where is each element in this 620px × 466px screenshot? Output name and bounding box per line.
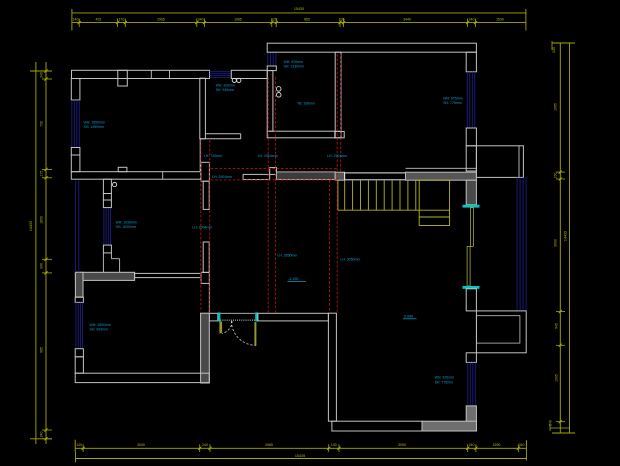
- svg-text:WH: 920mm: WH: 920mm: [435, 376, 455, 380]
- svg-text:150: 150: [554, 173, 558, 179]
- svg-text:SH: 1330mm: SH: 1330mm: [284, 65, 305, 69]
- svg-text:LH: 2904mm: LH: 2904mm: [212, 175, 232, 179]
- svg-text:LH: 2904mm: LH: 2904mm: [327, 154, 347, 158]
- svg-text:SH: 775mm: SH: 775mm: [443, 101, 462, 105]
- svg-text:WH: 1650mm: WH: 1650mm: [84, 121, 105, 125]
- svg-text:LH: 2904mm: LH: 2904mm: [258, 154, 278, 158]
- svg-text:SH: 1000mm: SH: 1000mm: [116, 225, 137, 229]
- svg-text:14435: 14435: [564, 231, 568, 241]
- svg-text:240: 240: [469, 18, 475, 22]
- svg-text:175: 175: [40, 171, 44, 177]
- svg-text:-1.150: -1.150: [288, 277, 298, 281]
- svg-text:2965: 2965: [265, 443, 273, 447]
- svg-text:140: 140: [331, 443, 337, 447]
- svg-text:240: 240: [202, 443, 208, 447]
- svg-text:TB: 100mm: TB: 100mm: [297, 101, 315, 105]
- svg-text:WH: 920mm: WH: 920mm: [284, 60, 304, 64]
- svg-text:135: 135: [339, 18, 345, 22]
- svg-text:240: 240: [40, 432, 44, 438]
- svg-text:3050: 3050: [398, 443, 406, 447]
- svg-text:240: 240: [519, 443, 525, 447]
- svg-text:15430: 15430: [294, 7, 304, 11]
- svg-text:240: 240: [549, 420, 553, 426]
- svg-text:SH: 775mm: SH: 775mm: [435, 380, 454, 384]
- svg-text:WH: 1600mm: WH: 1600mm: [90, 323, 111, 327]
- svg-text:985: 985: [40, 347, 44, 353]
- svg-text:1965: 1965: [554, 103, 558, 111]
- svg-text:340: 340: [40, 263, 44, 269]
- svg-text:140: 140: [76, 443, 82, 447]
- svg-text:730: 730: [40, 121, 44, 127]
- svg-text:LH: 2850mm: LH: 2850mm: [277, 254, 297, 258]
- svg-text:15435: 15435: [295, 454, 305, 458]
- svg-text:240: 240: [552, 47, 556, 53]
- svg-text:1905: 1905: [555, 374, 559, 382]
- svg-text:240: 240: [469, 443, 475, 447]
- svg-text:425: 425: [95, 18, 101, 22]
- svg-text:1965: 1965: [234, 18, 242, 22]
- svg-text:LH: 3050mm: LH: 3050mm: [340, 257, 360, 261]
- svg-text:14435: 14435: [29, 221, 33, 231]
- svg-text:SH: 1450mm: SH: 1450mm: [84, 125, 105, 129]
- svg-text:LH: 2904mm: LH: 2904mm: [192, 225, 212, 229]
- svg-text:240: 240: [40, 72, 44, 78]
- svg-text:WH: 575mm: WH: 575mm: [443, 96, 463, 100]
- svg-text:3000: 3000: [554, 239, 558, 247]
- svg-text:1890: 1890: [40, 216, 44, 224]
- svg-text:340: 340: [198, 18, 204, 22]
- svg-text:SH: 940mm: SH: 940mm: [216, 88, 235, 92]
- svg-text:1590: 1590: [496, 18, 504, 22]
- svg-text:865: 865: [304, 18, 310, 22]
- svg-text:125: 125: [271, 18, 277, 22]
- svg-text:140: 140: [73, 18, 79, 22]
- svg-text:945: 945: [555, 323, 559, 329]
- svg-text:3000: 3000: [137, 443, 145, 447]
- svg-text:LH: 730mm: LH: 730mm: [204, 154, 222, 158]
- svg-text:SH: 900mm: SH: 900mm: [90, 328, 109, 332]
- svg-text:170: 170: [118, 18, 124, 22]
- svg-text:2965: 2965: [157, 18, 165, 22]
- svg-text:3440: 3440: [403, 18, 411, 22]
- svg-text:5.090: 5.090: [404, 314, 413, 318]
- svg-text:1590: 1590: [493, 443, 501, 447]
- svg-text:WH: 1030mm: WH: 1030mm: [116, 221, 137, 225]
